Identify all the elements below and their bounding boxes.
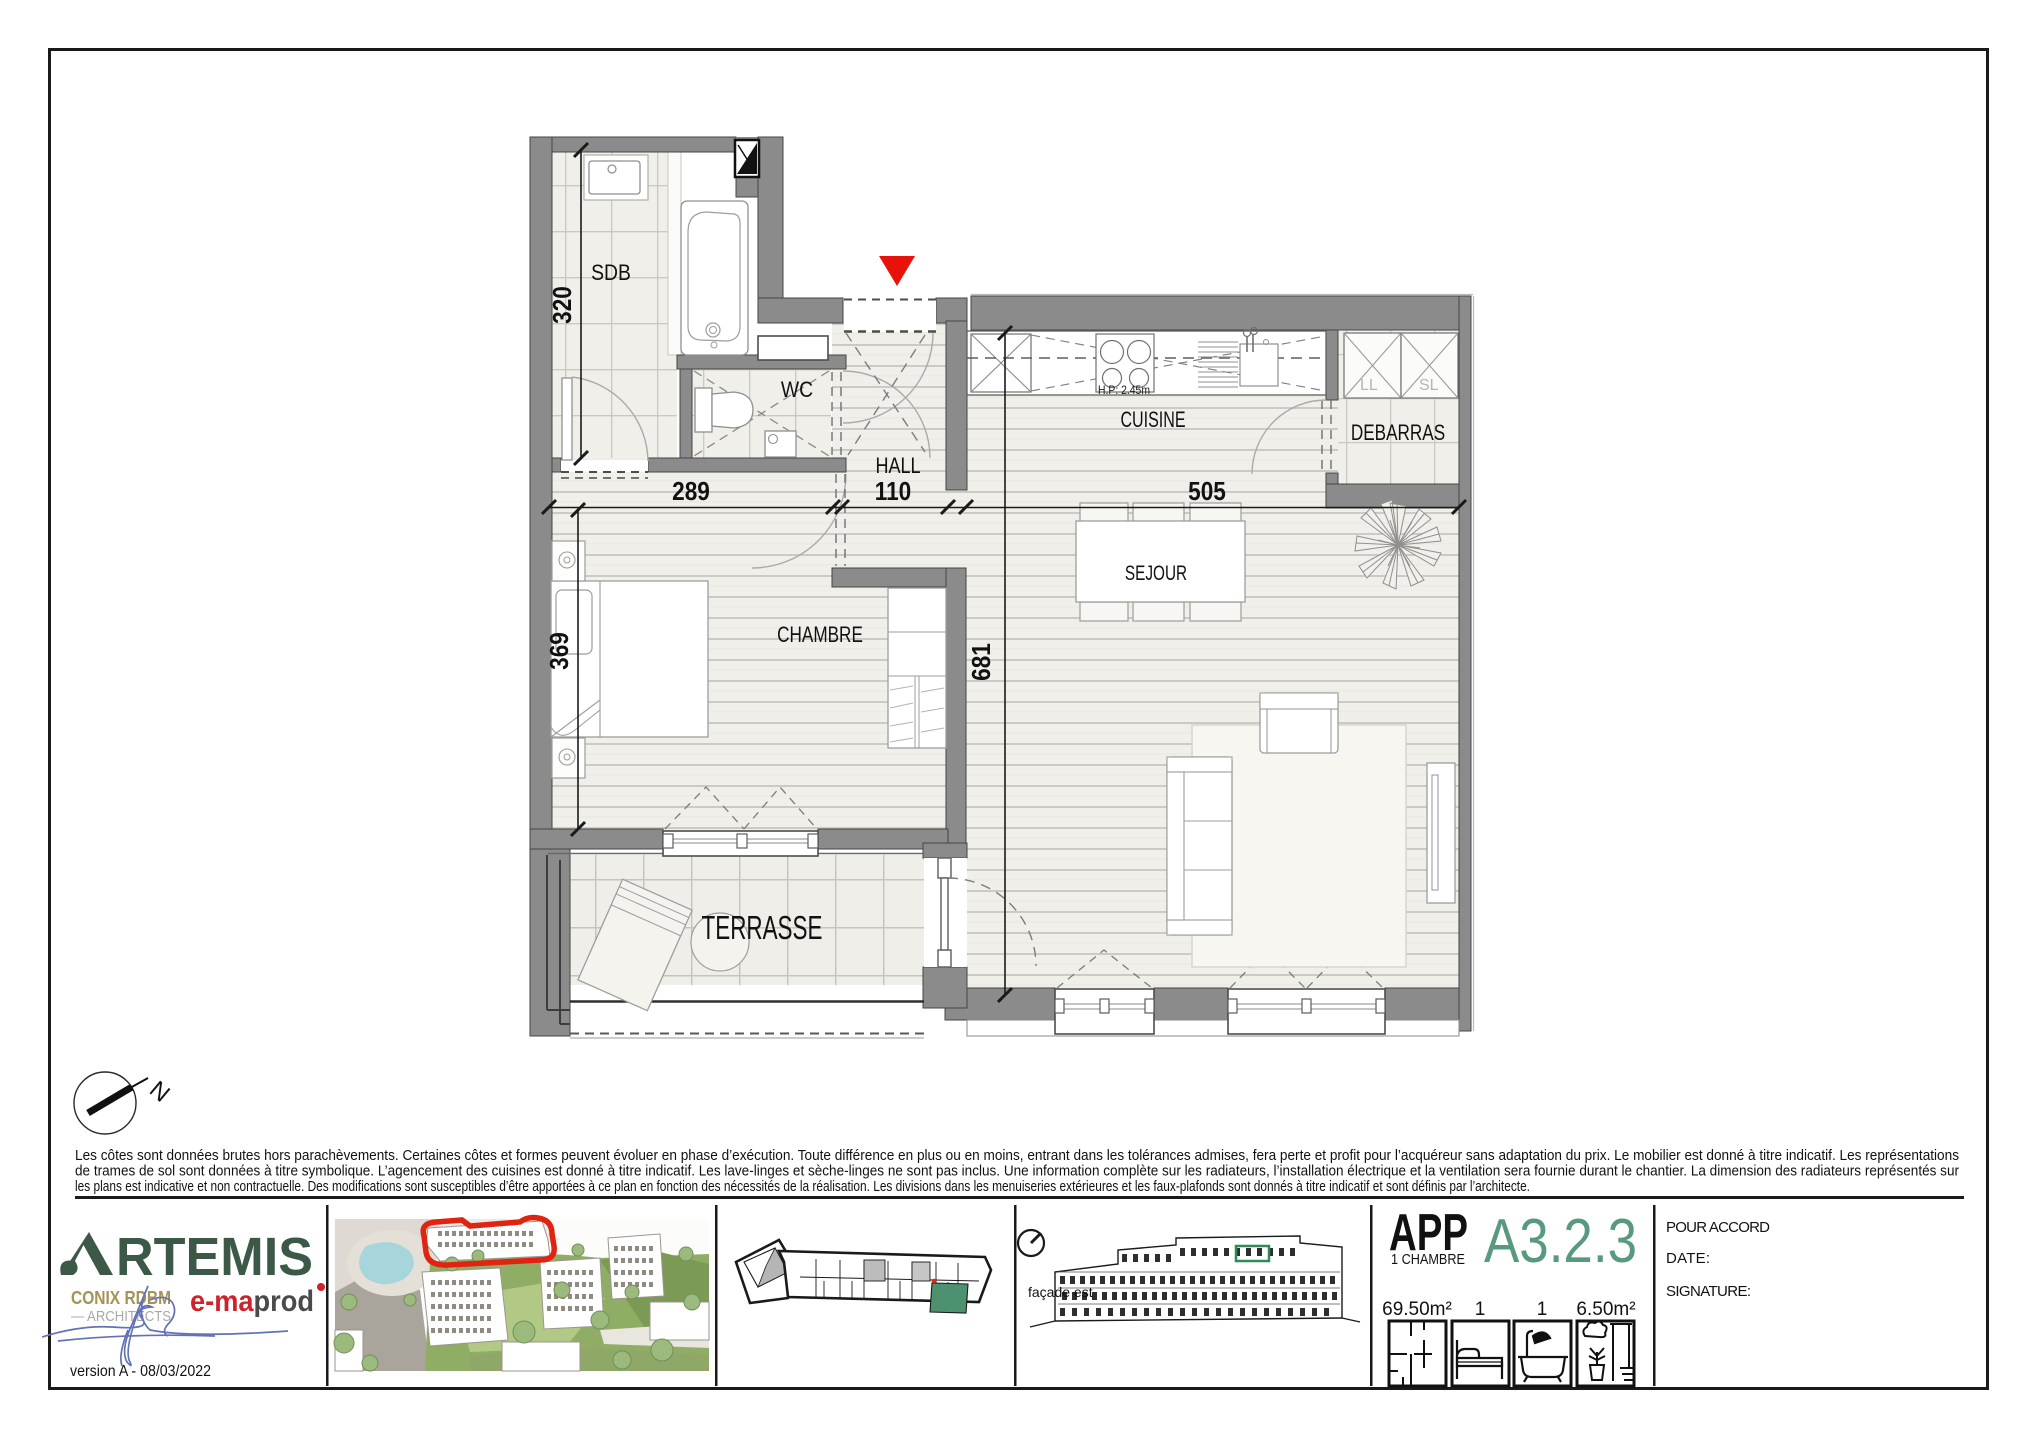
svg-text:SEJOUR: SEJOUR xyxy=(1125,561,1187,585)
svg-text:289: 289 xyxy=(672,478,710,507)
svg-text:version A - 08/03/2022: version A - 08/03/2022 xyxy=(70,1363,211,1380)
svg-text:CUISINE: CUISINE xyxy=(1120,409,1185,433)
svg-text:6.50m²: 6.50m² xyxy=(1576,1299,1635,1320)
svg-text:DATE:: DATE: xyxy=(1666,1250,1710,1267)
svg-text:de trames de sol sont données: de trames de sol sont données à titre sy… xyxy=(75,1163,1959,1180)
svg-text:SDB: SDB xyxy=(591,261,631,285)
svg-text:110: 110 xyxy=(875,478,911,507)
svg-text:WC: WC xyxy=(781,378,813,402)
svg-text:369: 369 xyxy=(546,632,575,670)
svg-text:A3.2.3: A3.2.3 xyxy=(1484,1207,1637,1276)
svg-text:LL: LL xyxy=(1360,377,1378,394)
svg-text:SIGNATURE:: SIGNATURE: xyxy=(1666,1283,1751,1300)
svg-text:e-maprod: e-maprod xyxy=(190,1285,314,1318)
svg-text:Les côtes sont données brutes: Les côtes sont données brutes hors parac… xyxy=(75,1147,1959,1164)
svg-text:POUR ACCORD: POUR ACCORD xyxy=(1666,1219,1770,1236)
svg-text:505: 505 xyxy=(1188,478,1226,507)
svg-text:— ARCHITECTS: — ARCHITECTS xyxy=(71,1308,171,1325)
svg-text:320: 320 xyxy=(549,286,578,324)
svg-text:1: 1 xyxy=(1537,1299,1548,1320)
svg-text:1 CHAMBRE: 1 CHAMBRE xyxy=(1391,1251,1465,1268)
svg-text:1: 1 xyxy=(1475,1299,1486,1320)
svg-text:HALL: HALL xyxy=(875,454,920,478)
svg-text:69.50m²: 69.50m² xyxy=(1382,1299,1452,1320)
svg-text:681: 681 xyxy=(968,643,997,681)
svg-text:DEBARRAS: DEBARRAS xyxy=(1351,421,1445,446)
svg-text:façade est: façade est xyxy=(1028,1284,1093,1300)
svg-text:RTEMIS: RTEMIS xyxy=(116,1227,313,1287)
svg-text:H.P: 2.45m: H.P: 2.45m xyxy=(1098,383,1150,397)
svg-text:SL: SL xyxy=(1419,377,1439,394)
svg-text:TERRASSE: TERRASSE xyxy=(702,909,823,946)
svg-text:CHAMBRE: CHAMBRE xyxy=(777,623,863,648)
svg-text:les plans est indicative et no: les plans est indicative et non contract… xyxy=(75,1178,1530,1195)
